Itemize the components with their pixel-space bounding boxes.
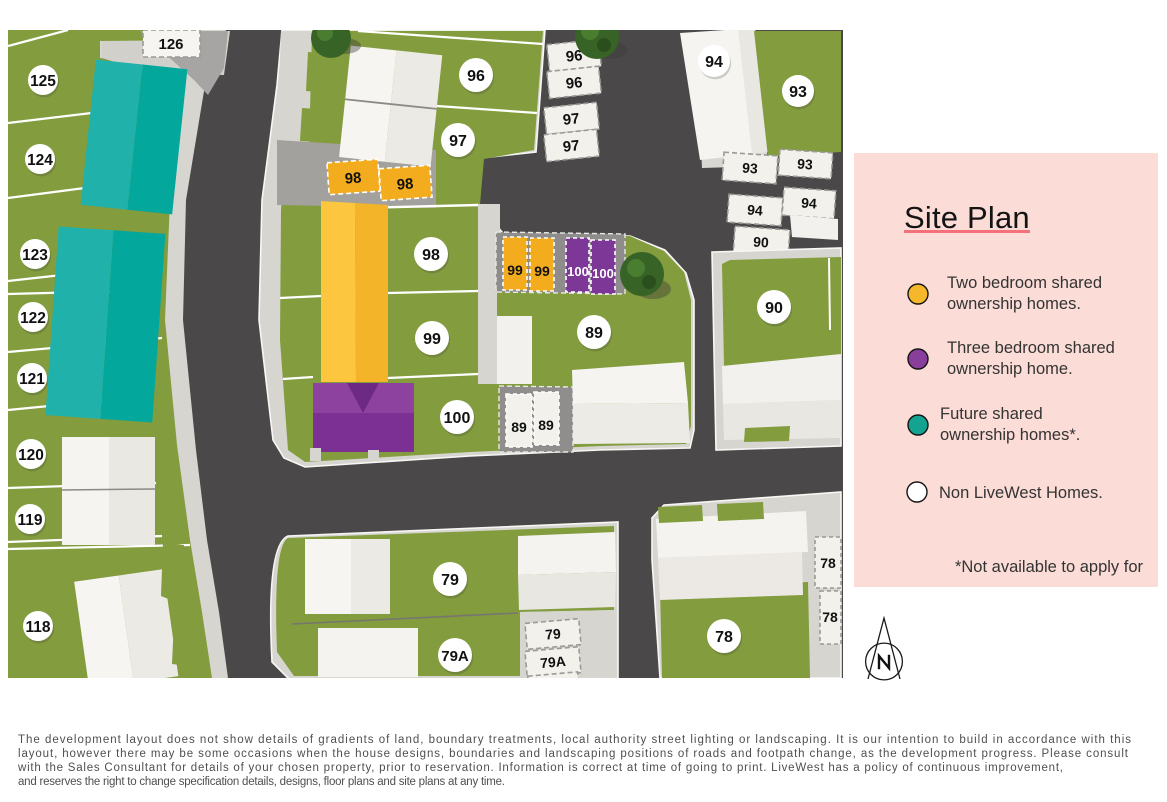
svg-text:96: 96 (467, 68, 485, 85)
svg-text:*Not available to apply for: *Not available to apply for (955, 558, 1144, 576)
svg-text:78: 78 (715, 629, 733, 646)
svg-text:100: 100 (592, 266, 614, 281)
svg-text:99: 99 (507, 262, 523, 278)
svg-text:layout, however there may be s: layout, however there may be some occasi… (18, 748, 1129, 760)
svg-text:Non LiveWest Homes.: Non LiveWest Homes. (939, 484, 1103, 502)
svg-text:94: 94 (801, 194, 818, 211)
svg-text:93: 93 (789, 84, 807, 101)
svg-text:118: 118 (25, 619, 50, 636)
svg-text:93: 93 (797, 155, 814, 172)
svg-text:79: 79 (545, 625, 562, 642)
svg-text:and reserves the right to chan: and reserves the right to change specifi… (18, 776, 505, 788)
svg-text:ownership homes.: ownership homes. (947, 295, 1081, 313)
svg-text:89: 89 (585, 325, 603, 342)
svg-text:Future shared: Future shared (940, 405, 1043, 423)
svg-text:93: 93 (742, 159, 759, 176)
svg-text:123: 123 (22, 247, 48, 264)
svg-text:78: 78 (820, 555, 836, 571)
svg-text:99: 99 (423, 331, 441, 348)
svg-text:Site Plan: Site Plan (904, 200, 1030, 235)
svg-text:100: 100 (567, 264, 589, 279)
svg-text:122: 122 (20, 310, 46, 327)
svg-text:124: 124 (27, 152, 53, 169)
svg-text:ownership home.: ownership home. (947, 360, 1073, 378)
svg-text:97: 97 (562, 110, 580, 129)
svg-text:126: 126 (158, 36, 183, 53)
svg-text:Two bedroom shared: Two bedroom shared (947, 274, 1102, 292)
svg-text:The development layout does no: The development layout does not show det… (18, 734, 1131, 746)
svg-text:94: 94 (705, 54, 723, 71)
svg-text:125: 125 (30, 73, 56, 90)
svg-text:90: 90 (765, 300, 783, 317)
svg-text:ownership homes*.: ownership homes*. (940, 426, 1080, 444)
svg-text:121: 121 (19, 371, 45, 388)
svg-text:100: 100 (444, 410, 471, 427)
svg-text:98: 98 (396, 175, 414, 193)
svg-text:with the Sales Consultant for: with the Sales Consultant for details of… (17, 762, 1063, 774)
svg-text:96: 96 (565, 74, 583, 93)
svg-text:Three bedroom shared: Three bedroom shared (947, 339, 1115, 357)
svg-text:78: 78 (822, 609, 838, 625)
svg-text:89: 89 (511, 419, 527, 435)
svg-text:90: 90 (753, 233, 770, 250)
svg-text:98: 98 (344, 169, 362, 187)
svg-text:79A: 79A (441, 648, 469, 665)
svg-text:119: 119 (17, 512, 42, 529)
svg-text:98: 98 (422, 247, 440, 264)
svg-text:94: 94 (747, 201, 764, 218)
svg-text:97: 97 (449, 133, 467, 150)
svg-text:79A: 79A (540, 653, 567, 671)
svg-text:99: 99 (534, 263, 550, 279)
svg-text:97: 97 (562, 137, 580, 156)
svg-text:79: 79 (441, 572, 459, 589)
svg-text:120: 120 (18, 447, 44, 464)
svg-text:89: 89 (538, 417, 554, 433)
